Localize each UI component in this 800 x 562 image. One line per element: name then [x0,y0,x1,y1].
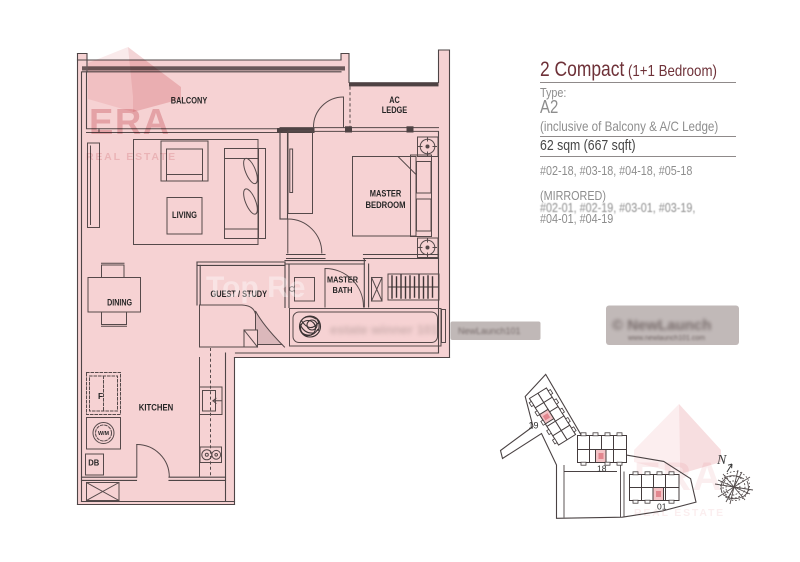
svg-text:DB: DB [88,459,99,468]
svg-text:LEDGE: LEDGE [382,105,408,115]
svg-text:REAL ESTATE: REAL ESTATE [86,151,177,163]
svg-text:W/M: W/M [98,431,110,437]
svg-text:Top Re: Top Re [206,271,305,304]
svg-text:MASTER: MASTER [327,275,359,285]
svg-text:KITCHEN: KITCHEN [139,403,174,413]
svg-text:estate winner 101: estate winner 101 [330,322,438,337]
svg-text:19: 19 [529,421,539,431]
svg-text:ERA: ERA [89,101,171,142]
svg-text:01: 01 [657,502,667,512]
svg-text:© NewLaunch: © NewLaunch [612,317,711,334]
svg-text:BEDROOM: BEDROOM [366,200,406,210]
svg-text:BATH: BATH [333,285,353,295]
svg-text:F: F [98,391,103,401]
svg-text:NewLaunch101: NewLaunch101 [458,326,521,336]
svg-text:DINING: DINING [107,297,132,307]
svg-text:www.newlaunch101.com: www.newlaunch101.com [627,335,705,342]
svg-text:MASTER: MASTER [370,189,402,199]
svg-text:LIVING: LIVING [172,210,197,220]
svg-text:N: N [716,453,727,468]
svg-text:18: 18 [597,464,607,474]
svg-text:AC: AC [389,95,400,105]
